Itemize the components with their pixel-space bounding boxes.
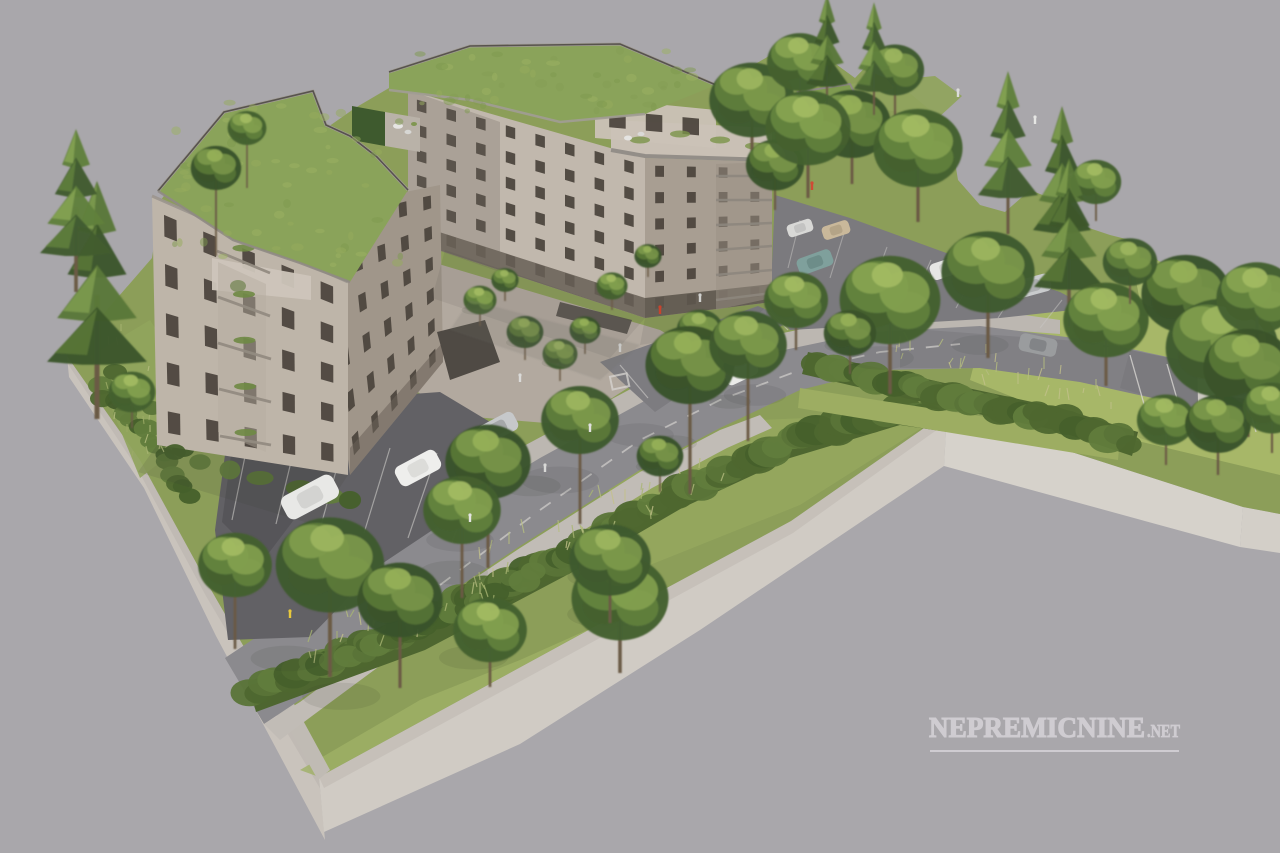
- svg-text:.NET: .NET: [1147, 721, 1180, 741]
- svg-text:NEPREMICNINE: NEPREMICNINE: [929, 713, 1145, 744]
